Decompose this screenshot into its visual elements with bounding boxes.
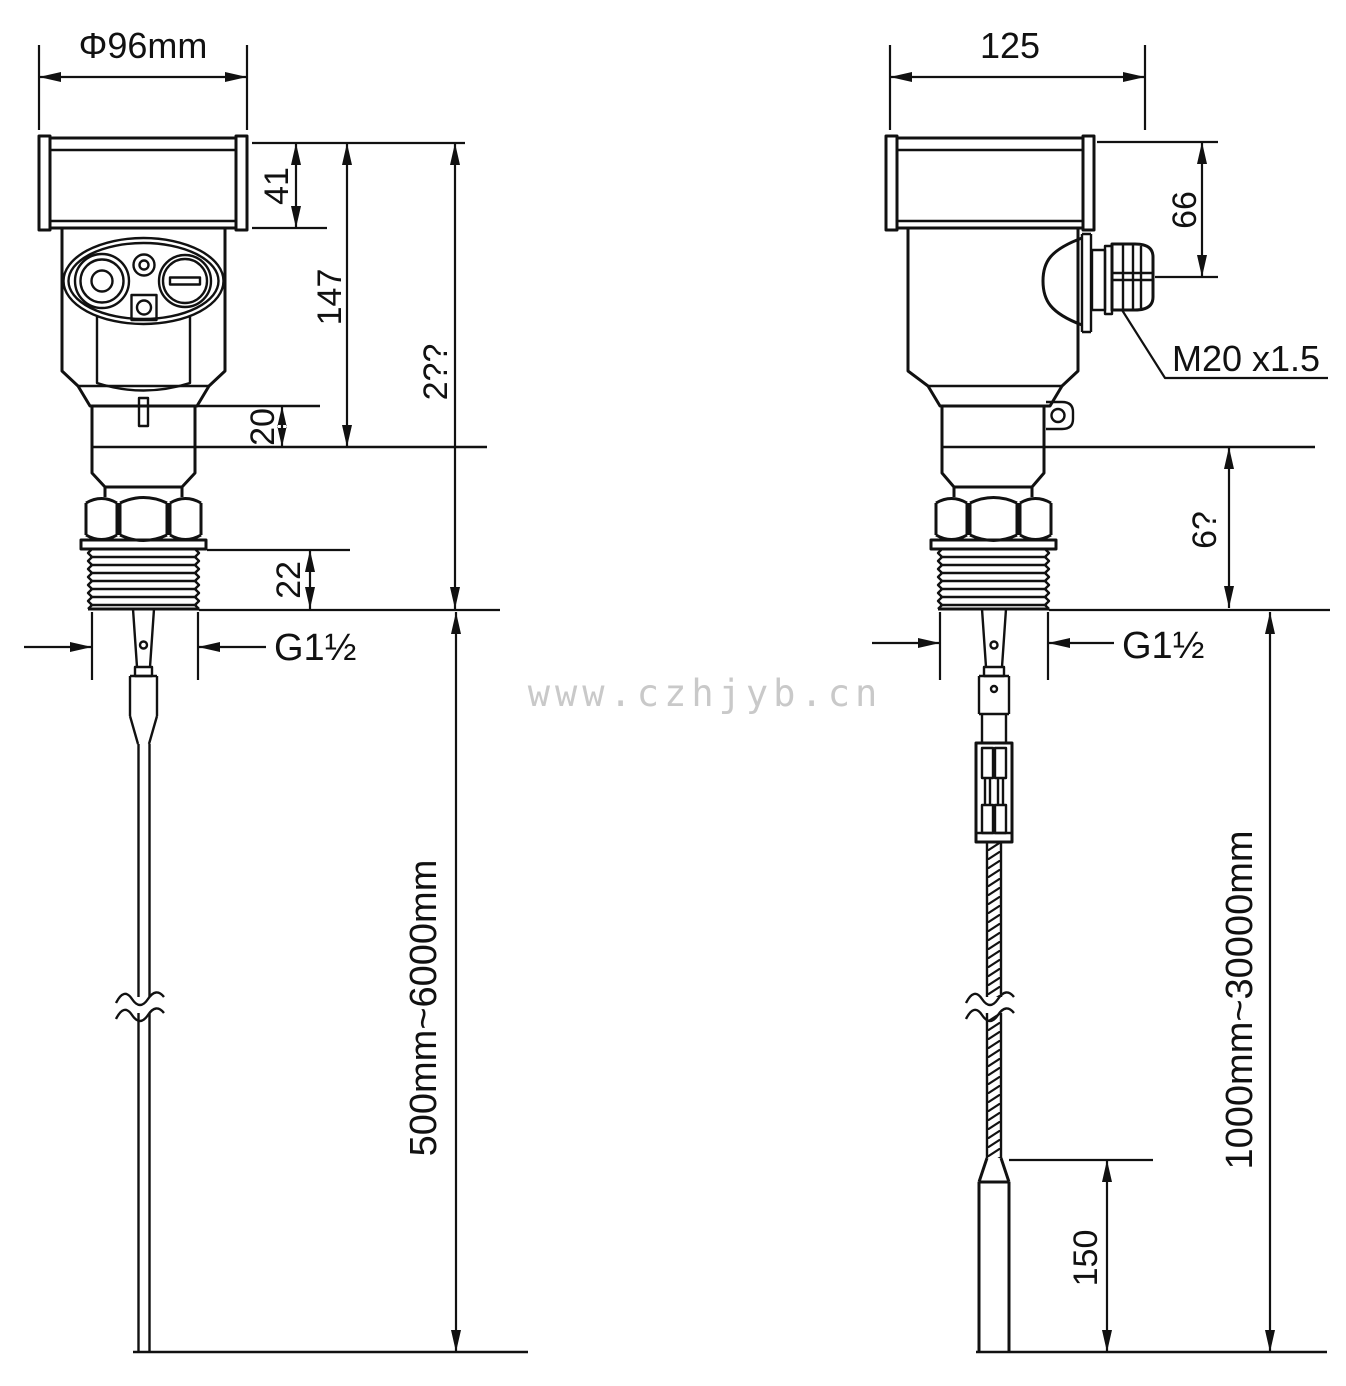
right-probe-junction <box>984 667 1004 676</box>
left-flange <box>81 540 206 549</box>
left-dial-top-center <box>140 261 149 270</box>
left-cap-left-lip <box>39 136 50 230</box>
left-dial-bottom-circle <box>137 301 151 315</box>
right-cable-clamp-right-slot <box>995 748 1006 833</box>
dim-label-overall-upper-height: 2?? <box>417 344 455 401</box>
left-probe-rod <box>139 744 150 1352</box>
right-cap-outline <box>897 138 1083 228</box>
left-probe-upper-taper <box>133 609 154 667</box>
right-cap-right-lip <box>1083 136 1094 230</box>
left-dial-left-mid <box>81 260 124 303</box>
dim-housing-diameter: Φ96mm <box>39 25 247 130</box>
right-gland-ribs <box>1112 244 1153 310</box>
dim-label-gland-height: 66 <box>1166 191 1204 229</box>
dim-label-head-height: 147 <box>311 269 349 326</box>
label-cable-gland-thread-text: M20 x1.5 <box>1172 338 1320 379</box>
right-probe-narrow-section <box>982 714 1006 743</box>
right-cap-left-lip <box>886 136 897 230</box>
dim-cap-height: 41 <box>252 143 465 228</box>
left-dial-right-minus-bar <box>170 278 200 285</box>
right-gland-plate <box>1082 234 1091 332</box>
left-cap-right-lip <box>236 136 247 230</box>
dim-lines <box>24 612 266 680</box>
dim-label-process-thread-right: G1½ <box>1122 625 1204 667</box>
left-dial-bottom-square <box>132 295 157 320</box>
dim-process-thread-left: G1½ <box>24 612 356 680</box>
dim-label-housing-width: 125 <box>980 25 1040 66</box>
dim-lines <box>872 612 1114 680</box>
right-counterweight <box>979 1158 1009 1352</box>
right-mounting-lug-hole <box>1052 409 1065 422</box>
dim-label-counterweight-length: 150 <box>1067 1230 1105 1287</box>
right-flange <box>931 540 1056 549</box>
left-display-housing <box>97 316 190 391</box>
right-cable-clamp-left-slot <box>982 748 993 833</box>
dim-label-cap-height: 41 <box>258 167 296 205</box>
left-dial-left-center <box>92 271 113 292</box>
label-cable-gland-thread: M20 x1.5 <box>1122 310 1328 379</box>
right-probe-hole-upper <box>991 642 998 649</box>
dim-housing-width: 125 <box>890 25 1145 130</box>
left-dial-left-outer <box>75 254 129 308</box>
technical-drawing-page: Φ96mm 41 147 2?? 20 22 G1½ 500mm~6000mm <box>0 0 1346 1386</box>
level-transmitter-dimension-drawing: Φ96mm 41 147 2?? 20 22 G1½ 500mm~6000mm <box>0 0 1346 1386</box>
dim-thread-length: 22 <box>207 550 350 609</box>
dim-label-thread-length: 22 <box>270 561 308 599</box>
left-cap-outline <box>50 138 236 228</box>
left-probe-junction <box>135 667 152 676</box>
dim-label-process-thread-left: G1½ <box>274 627 356 669</box>
dim-overall-upper-height: 2?? <box>417 143 460 609</box>
dim-probe-length-range: 500mm~6000mm <box>199 610 500 1352</box>
right-neck-outline <box>942 406 1044 497</box>
left-neck-tab <box>139 398 148 426</box>
dim-counterweight-length: 150 <box>1009 1160 1153 1352</box>
right-hex-nut <box>936 498 1051 541</box>
left-hex-nut <box>86 498 201 541</box>
left-dial-right-outer <box>159 255 211 307</box>
right-gland-dome <box>1043 238 1082 325</box>
dim-label-housing-diameter: Φ96mm <box>79 25 208 66</box>
left-probe-second-section <box>130 676 157 744</box>
right-gland-neck <box>1092 250 1105 310</box>
dim-label-neck-height: 20 <box>244 408 282 446</box>
left-dial-top-outer <box>134 255 155 276</box>
left-cap-inner-lines <box>50 150 236 221</box>
dim-lines <box>199 610 500 1352</box>
left-probe-hole <box>140 642 147 649</box>
watermark-text: www.czhjyb.cn <box>528 672 883 715</box>
dim-lower-section-height: 6? <box>1186 447 1234 608</box>
right-cap-inner-lines <box>897 150 1083 221</box>
dim-gland-height: 66 <box>1097 142 1218 277</box>
right-probe-second-section <box>979 676 1009 714</box>
right-probe-upper-taper <box>982 609 1006 667</box>
right-cable-break-gap <box>974 997 1014 1013</box>
left-neck-outline <box>92 406 195 497</box>
dim-process-thread-right: G1½ <box>872 612 1204 680</box>
dim-neck-height: 20 <box>244 406 287 447</box>
dim-label-cable-length-range: 1000mm~30000mm <box>1219 830 1261 1169</box>
dim-label-probe-length-range: 500mm~6000mm <box>403 860 445 1157</box>
right-thread-lines <box>940 557 1047 605</box>
left-thread-lines <box>90 557 197 605</box>
dim-head-height: 147 <box>311 143 352 447</box>
dim-label-lower-section-height: 6? <box>1186 511 1224 549</box>
right-probe-hole-lower <box>991 686 997 692</box>
